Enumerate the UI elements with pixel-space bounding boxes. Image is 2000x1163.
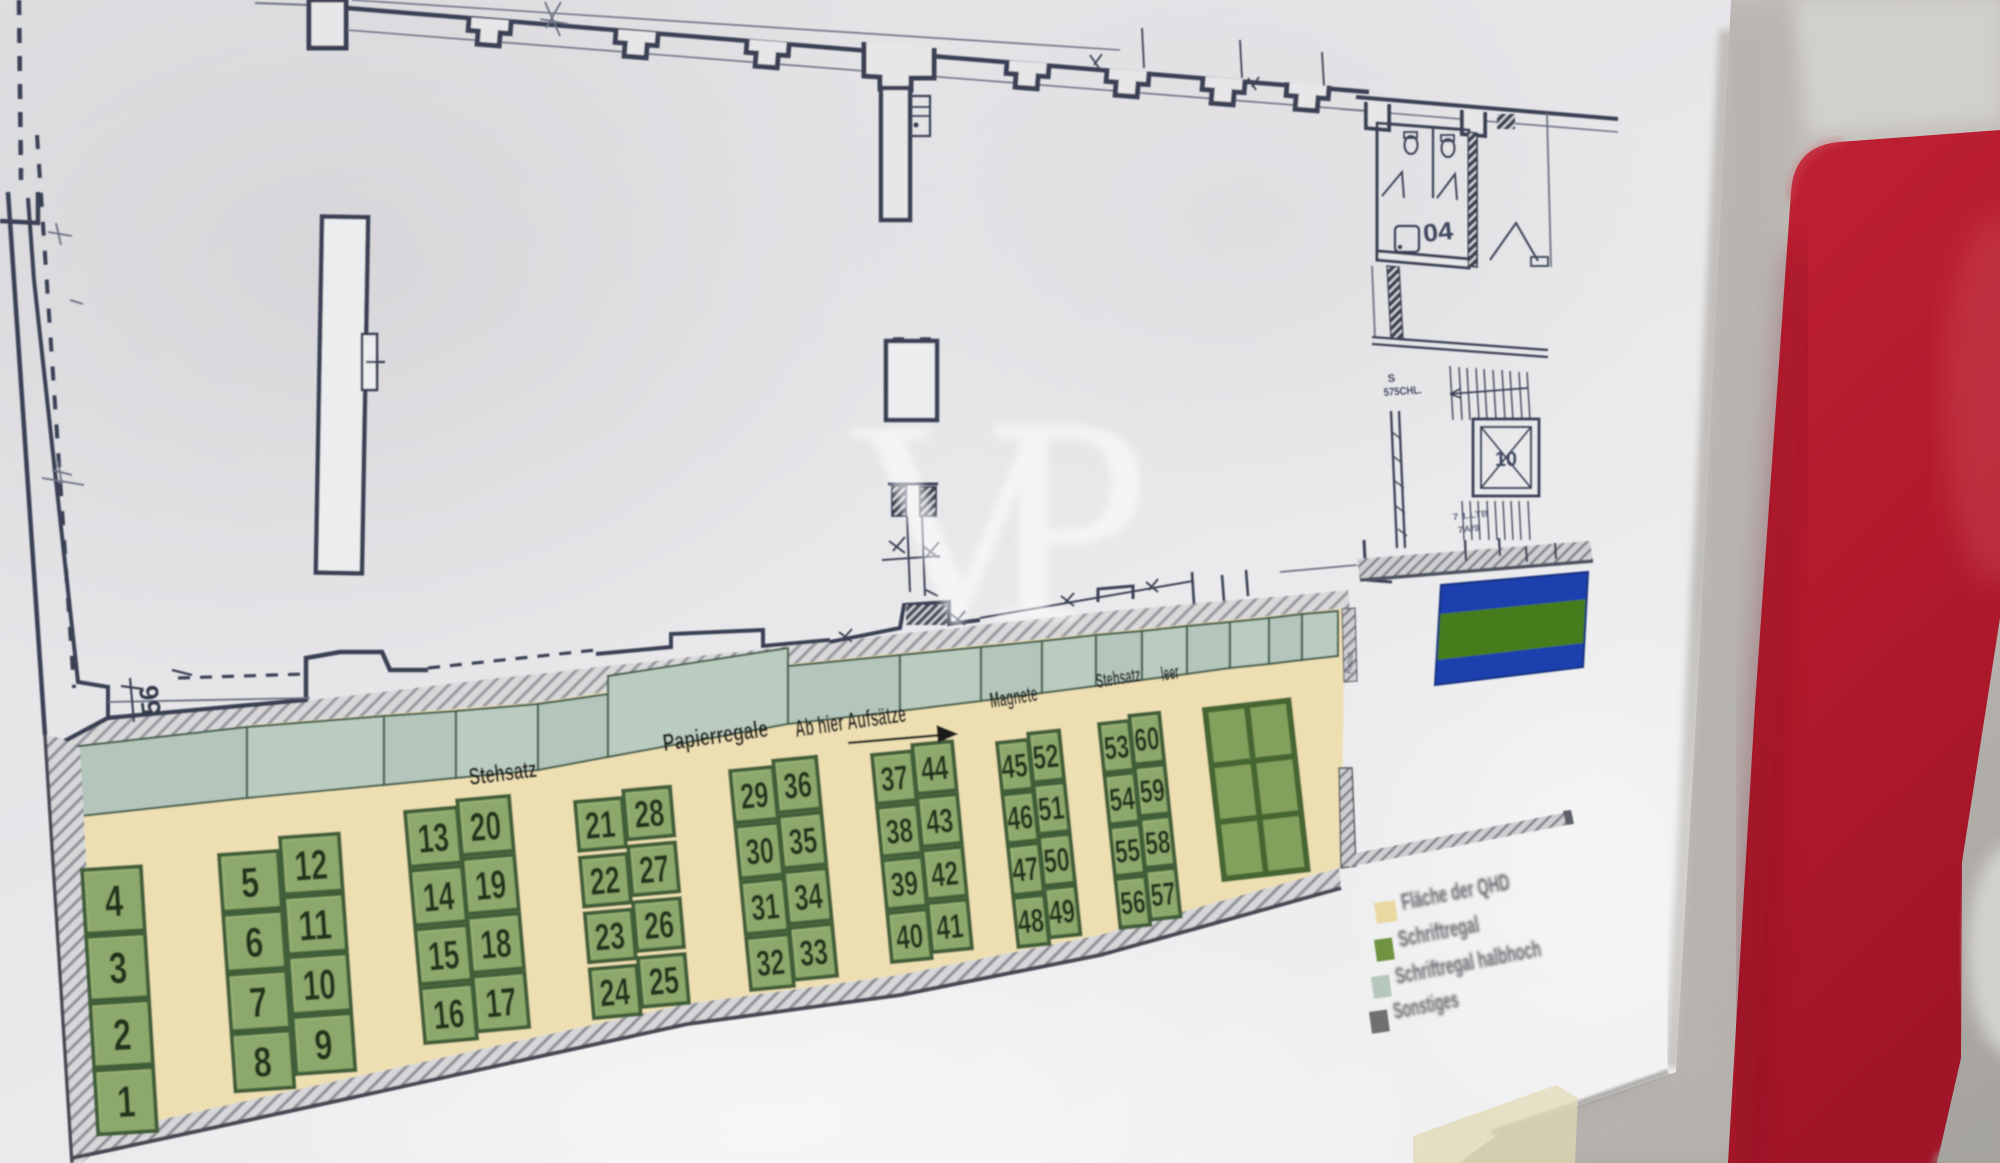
svg-text:35: 35 (787, 819, 819, 862)
svg-text:40: 40 (894, 917, 925, 957)
svg-text:51: 51 (1036, 788, 1066, 828)
svg-text:52: 52 (1031, 737, 1061, 777)
svg-text:33: 33 (798, 931, 830, 974)
svg-text:13: 13 (416, 815, 451, 862)
svg-text:45: 45 (1000, 746, 1030, 786)
svg-text:7: 7 (248, 978, 269, 1026)
svg-text:54: 54 (1108, 780, 1137, 818)
svg-text:38: 38 (884, 812, 915, 852)
svg-text:41: 41 (935, 907, 966, 947)
svg-text:24: 24 (598, 971, 632, 1015)
svg-text:16: 16 (431, 992, 466, 1039)
svg-text:8: 8 (252, 1038, 273, 1086)
svg-text:36: 36 (782, 763, 814, 806)
svg-text:6: 6 (244, 918, 265, 966)
svg-text:43: 43 (924, 802, 955, 842)
svg-text:17: 17 (484, 980, 519, 1027)
svg-text:34: 34 (792, 875, 824, 918)
svg-text:39: 39 (889, 864, 920, 904)
svg-text:28: 28 (633, 792, 667, 836)
svg-text:9: 9 (313, 1021, 334, 1069)
svg-text:30: 30 (744, 829, 776, 872)
svg-text:15: 15 (426, 933, 461, 980)
svg-text:58: 58 (1143, 823, 1172, 861)
svg-text:22: 22 (588, 859, 622, 903)
svg-text:2: 2 (112, 1010, 133, 1060)
svg-text:29: 29 (739, 774, 771, 817)
svg-text:P: P (986, 355, 1152, 685)
svg-text:48: 48 (1016, 901, 1046, 941)
svg-text:11: 11 (297, 900, 333, 949)
svg-text:44: 44 (919, 749, 950, 789)
svg-text:50: 50 (1042, 840, 1072, 880)
svg-text:3: 3 (108, 943, 129, 993)
svg-text:25: 25 (647, 960, 681, 1004)
svg-text:23: 23 (593, 915, 627, 959)
svg-text:4: 4 (104, 877, 125, 927)
svg-text:27: 27 (637, 848, 671, 892)
svg-text:32: 32 (755, 941, 787, 984)
svg-text:19: 19 (473, 863, 508, 910)
svg-text:57: 57 (1149, 875, 1178, 913)
svg-text:04: 04 (1422, 217, 1455, 248)
svg-text:49: 49 (1047, 892, 1077, 932)
svg-text:55: 55 (1113, 832, 1142, 870)
svg-text:59: 59 (1138, 772, 1167, 810)
svg-text:12: 12 (293, 841, 329, 890)
svg-text:S: S (1387, 373, 1395, 385)
svg-text:60: 60 (1133, 720, 1162, 758)
svg-text:10: 10 (301, 960, 337, 1009)
svg-text:10: 10 (1495, 448, 1517, 471)
svg-text:31: 31 (749, 885, 781, 928)
svg-text:42: 42 (930, 854, 961, 894)
svg-text:5: 5 (239, 858, 260, 906)
svg-text:1: 1 (116, 1077, 137, 1127)
svg-text:leer: leer (1159, 661, 1180, 686)
svg-text:56: 56 (1119, 883, 1148, 921)
svg-text:18: 18 (479, 921, 514, 968)
svg-text:26: 26 (642, 904, 676, 948)
svg-text:21: 21 (583, 804, 617, 848)
svg-text:53: 53 (1102, 728, 1131, 766)
svg-text:20: 20 (468, 804, 503, 851)
svg-text:47: 47 (1010, 849, 1040, 889)
svg-text:37: 37 (879, 759, 910, 799)
svg-text:14: 14 (421, 874, 456, 921)
svg-text:46: 46 (1005, 798, 1035, 838)
